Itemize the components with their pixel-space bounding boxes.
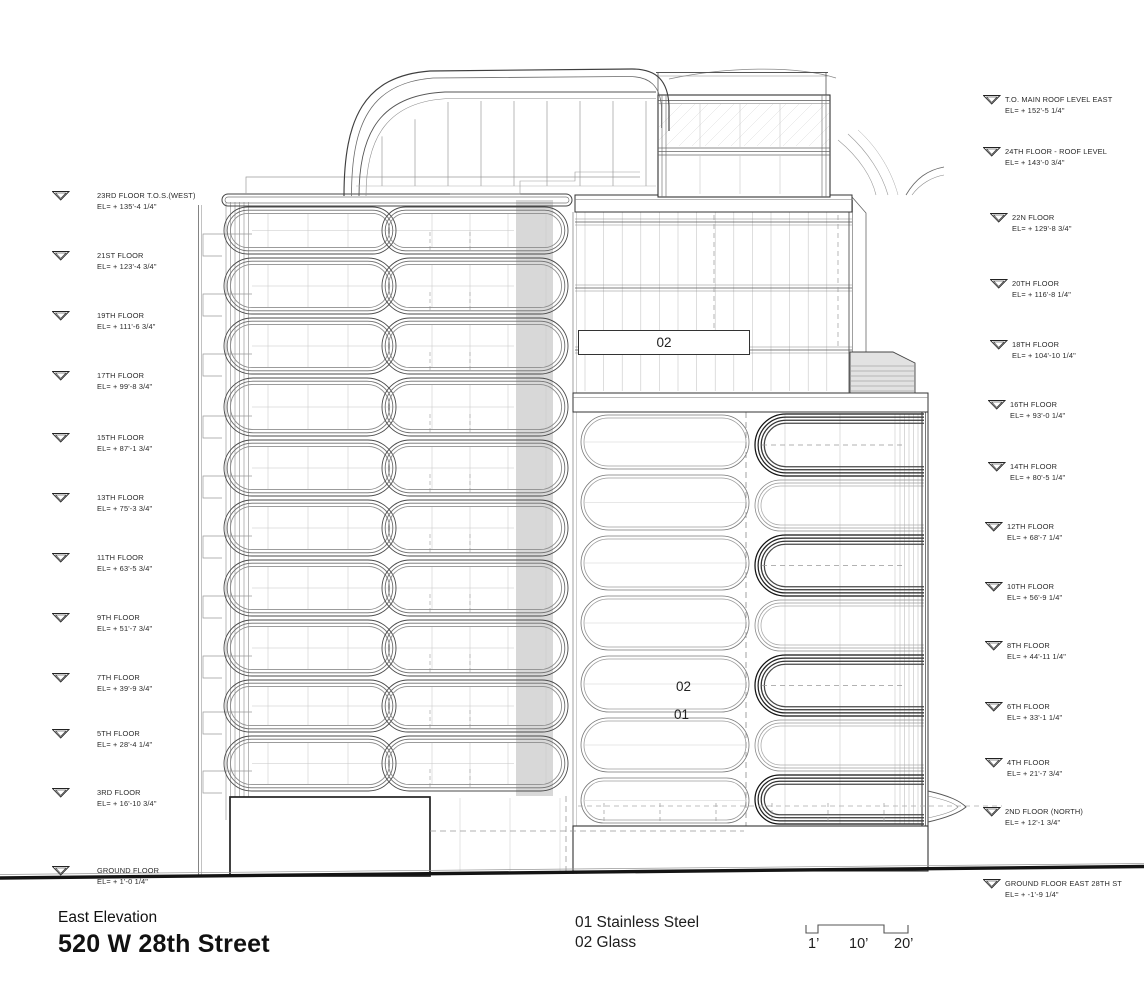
datum-triangle-icon (52, 191, 70, 201)
material-legend: 01 Stainless Steel 02 Glass (575, 913, 699, 954)
datum-triangle-icon (988, 462, 1006, 472)
level-elevation: EL= + 152'-5 1/4" (1005, 107, 1065, 114)
level-elevation: EL= + 80'-5 1/4" (1010, 474, 1065, 481)
left-tower (199, 177, 641, 876)
material-tag-glass-mid: 02 (676, 679, 691, 694)
datum-triangle-icon (52, 493, 70, 503)
legend-item-glass: 02 Glass (575, 933, 699, 953)
level-elevation: EL= + 63'-5 3/4" (97, 565, 152, 572)
level-elevation: EL= + 44'-11 1/4" (1007, 653, 1066, 660)
level-elevation: EL= + 116'-8 1/4" (1012, 291, 1071, 298)
datum-triangle-icon (983, 879, 1001, 889)
right-tower-frames (755, 414, 991, 824)
level-elevation: EL= + 135'-4 1/4" (97, 203, 157, 210)
level-name: 13TH FLOOR (97, 494, 144, 501)
level-elevation: EL= + 99'-8 3/4" (97, 383, 152, 390)
level-name: 18TH FLOOR (1012, 341, 1059, 348)
datum-triangle-icon (52, 311, 70, 321)
datum-triangle-icon (985, 522, 1003, 532)
level-name: 3RD FLOOR (97, 789, 141, 796)
datum-triangle-icon (52, 866, 70, 876)
datum-triangle-icon (985, 641, 1003, 651)
level-elevation: EL= + 104'-10 1/4" (1012, 352, 1076, 359)
datum-triangle-icon (990, 213, 1008, 223)
level-name: 11TH FLOOR (97, 554, 144, 561)
scale-label-20ft: 20’ (894, 936, 913, 952)
project-name: 520 W 28th Street (58, 930, 270, 959)
title-block: East Elevation 520 W 28th Street (58, 909, 270, 959)
level-name: GROUND FLOOR (97, 867, 159, 874)
scale-label-1ft: 1’ (808, 936, 819, 952)
level-elevation: EL= + 1'-0 1/4" (97, 878, 148, 885)
level-elevation: EL= + 68'-7 1/4" (1007, 534, 1062, 541)
level-elevation: EL= + 39'-9 3/4" (97, 685, 152, 692)
level-elevation: EL= + 93'-0 1/4" (1010, 412, 1065, 419)
level-name: GROUND FLOOR EAST 28TH ST (1005, 880, 1122, 887)
level-elevation: EL= + 28'-4 1/4" (97, 741, 152, 748)
datum-triangle-icon (983, 95, 1001, 105)
level-elevation: EL= + 75'-3 3/4" (97, 505, 152, 512)
level-name: 22N FLOOR (1012, 214, 1054, 221)
level-name: 10TH FLOOR (1007, 583, 1054, 590)
view-name: East Elevation (58, 909, 270, 927)
level-elevation: EL= + 123'-4 3/4" (97, 263, 157, 270)
elevation-sheet: 23RD FLOOR T.O.S.(WEST)EL= + 135'-4 1/4"… (0, 0, 1144, 1000)
level-name: 23RD FLOOR T.O.S.(WEST) (97, 192, 196, 199)
datum-triangle-icon (52, 613, 70, 623)
level-elevation: EL= + 21'-7 3/4" (1007, 770, 1062, 777)
datum-triangle-icon (985, 702, 1003, 712)
level-elevation: EL= + 129'-8 3/4" (1012, 225, 1072, 232)
datum-triangle-icon (985, 582, 1003, 592)
material-tag-steel: 01 (674, 707, 689, 722)
level-elevation: EL= + 56'-9 1/4" (1007, 594, 1062, 601)
datum-triangle-icon (52, 788, 70, 798)
level-name: 9TH FLOOR (97, 614, 140, 621)
level-elevation: EL= + 111'-6 3/4" (97, 323, 156, 330)
datum-triangle-icon (52, 371, 70, 381)
level-name: T.O. MAIN ROOF LEVEL EAST (1005, 96, 1112, 103)
right-tower-upper (575, 195, 915, 393)
level-elevation: EL= + 51'-7 3/4" (97, 625, 152, 632)
street-level (0, 796, 1144, 878)
datum-triangle-icon (983, 807, 1001, 817)
level-elevation: EL= + 33'-1 1/4" (1007, 714, 1062, 721)
penthouse (640, 69, 944, 197)
level-name: 4TH FLOOR (1007, 759, 1050, 766)
datum-triangle-icon (52, 673, 70, 683)
level-elevation: EL= + -1'-9 1/4" (1005, 891, 1059, 898)
level-name: 17TH FLOOR (97, 372, 144, 379)
datum-triangle-icon (990, 279, 1008, 289)
right-tower (573, 212, 1002, 874)
level-name: 6TH FLOOR (1007, 703, 1050, 710)
level-name: 20TH FLOOR (1012, 280, 1059, 287)
datum-triangle-icon (988, 400, 1006, 410)
graphic-scale-bar (806, 925, 908, 933)
level-elevation: EL= + 87'-1 3/4" (97, 445, 152, 452)
scale-label-10ft: 10’ (849, 936, 868, 952)
datum-triangle-icon (990, 340, 1008, 350)
level-name: 8TH FLOOR (1007, 642, 1050, 649)
datum-triangle-icon (983, 147, 1001, 157)
level-name: 24TH FLOOR - ROOF LEVEL (1005, 148, 1107, 155)
level-elevation: EL= + 16'-10 3/4" (97, 800, 157, 807)
datum-triangle-icon (52, 553, 70, 563)
datum-triangle-icon (52, 251, 70, 261)
level-name: 14TH FLOOR (1010, 463, 1057, 470)
legend-item-stainless-steel: 01 Stainless Steel (575, 913, 699, 933)
level-name: 15TH FLOOR (97, 434, 144, 441)
level-name: 12TH FLOOR (1007, 523, 1054, 530)
datum-triangle-icon (985, 758, 1003, 768)
level-name: 19TH FLOOR (97, 312, 144, 319)
level-elevation: EL= + 143'-0 3/4" (1005, 159, 1065, 166)
level-name: 5TH FLOOR (97, 730, 140, 737)
material-tag-glass-upper: 02 (578, 330, 750, 355)
level-name: 2ND FLOOR (NORTH) (1005, 808, 1083, 815)
level-name: 7TH FLOOR (97, 674, 140, 681)
level-name: 21ST FLOOR (97, 252, 144, 259)
level-elevation: EL= + 12'-1 3/4" (1005, 819, 1060, 826)
building-elevation-drawing (0, 0, 1144, 1000)
datum-triangle-icon (52, 729, 70, 739)
datum-triangle-icon (52, 433, 70, 443)
level-name: 16TH FLOOR (1010, 401, 1057, 408)
